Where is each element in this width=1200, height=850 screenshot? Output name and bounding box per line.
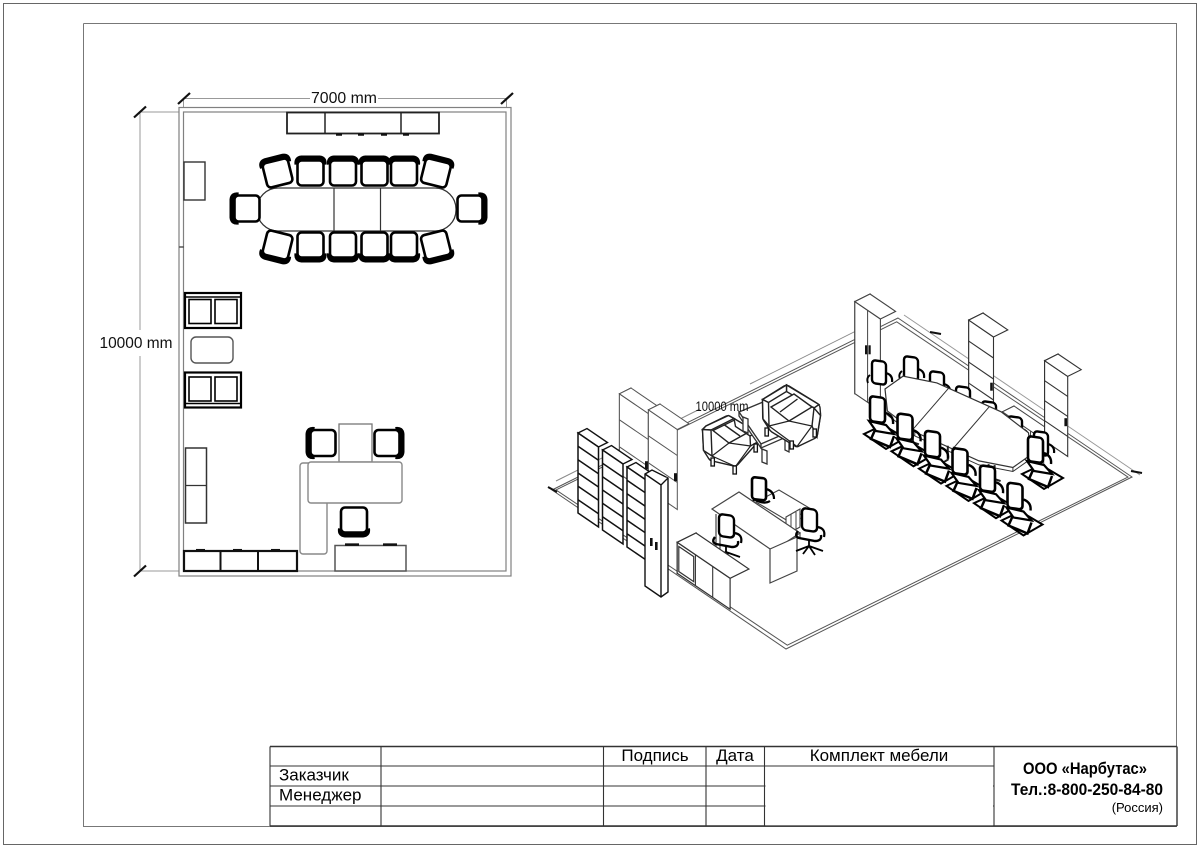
svg-text:Менеджер: Менеджер — [279, 786, 361, 805]
svg-text:(Россия): (Россия) — [1112, 800, 1163, 815]
svg-text:Дата: Дата — [716, 746, 754, 765]
svg-text:7000 mm: 7000 mm — [311, 90, 377, 107]
svg-text:Подпись: Подпись — [621, 746, 688, 765]
svg-text:10000 mm: 10000 mm — [696, 399, 749, 414]
svg-text:Тел.:8-800-250-84-80: Тел.:8-800-250-84-80 — [1011, 780, 1163, 799]
svg-text:Комплект мебели: Комплект мебели — [810, 746, 949, 765]
svg-text:Заказчик: Заказчик — [279, 766, 349, 785]
svg-text:ООО «Нарбутас»: ООО «Нарбутас» — [1023, 759, 1147, 778]
svg-text:10000 mm: 10000 mm — [100, 335, 173, 352]
